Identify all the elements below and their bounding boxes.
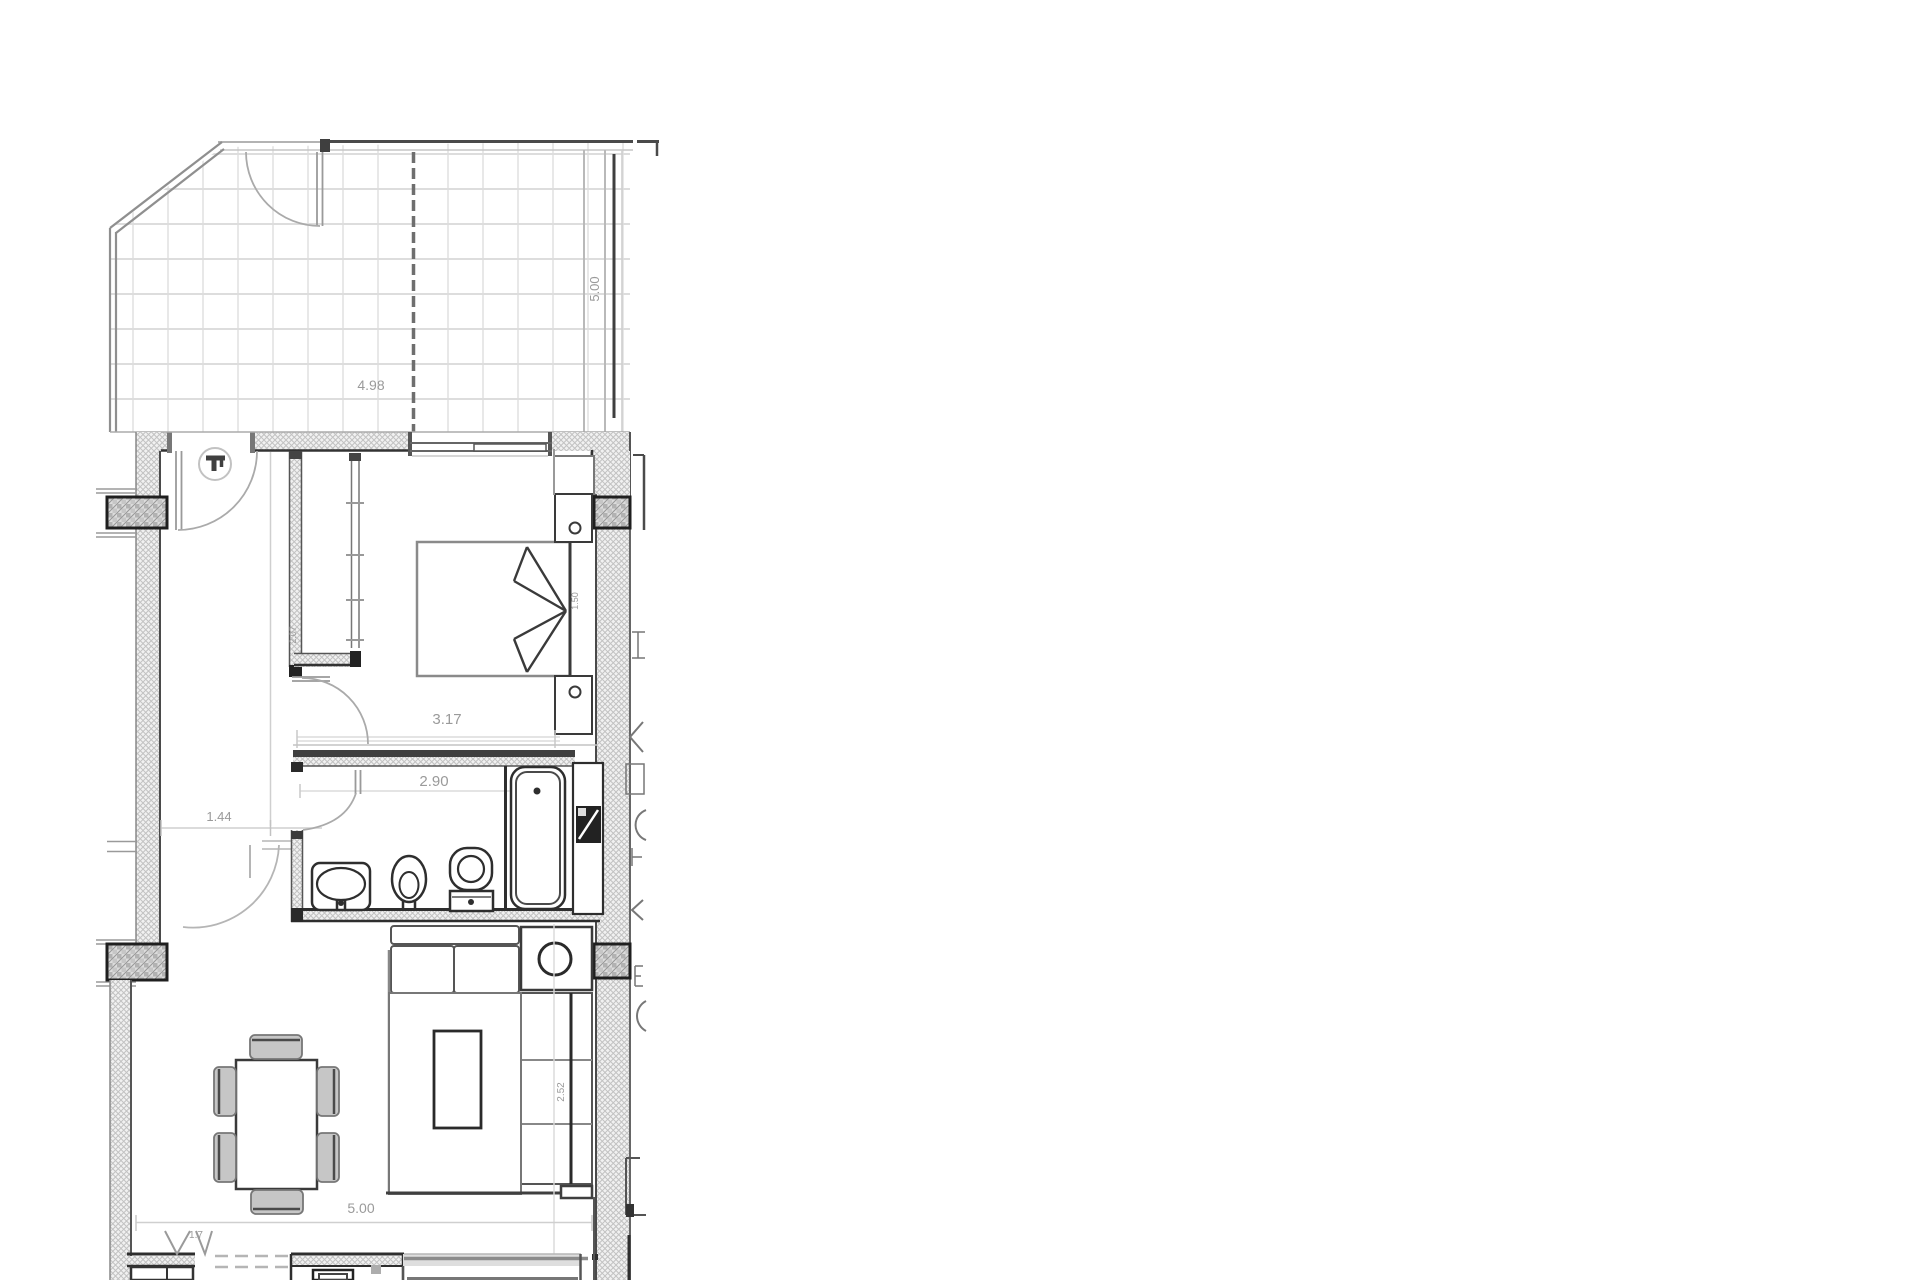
svg-text:3.17: 3.17: [432, 711, 461, 728]
svg-text:4.98: 4.98: [357, 377, 384, 393]
svg-text:5.00: 5.00: [587, 276, 602, 301]
svg-text:2.07: 2.07: [288, 626, 298, 644]
svg-text:2.52: 2.52: [556, 1082, 567, 1102]
svg-text:1.44: 1.44: [206, 809, 231, 824]
svg-text:5.00: 5.00: [347, 1200, 374, 1216]
svg-text:1.50: 1.50: [570, 592, 580, 610]
svg-text:2.90: 2.90: [419, 773, 448, 790]
